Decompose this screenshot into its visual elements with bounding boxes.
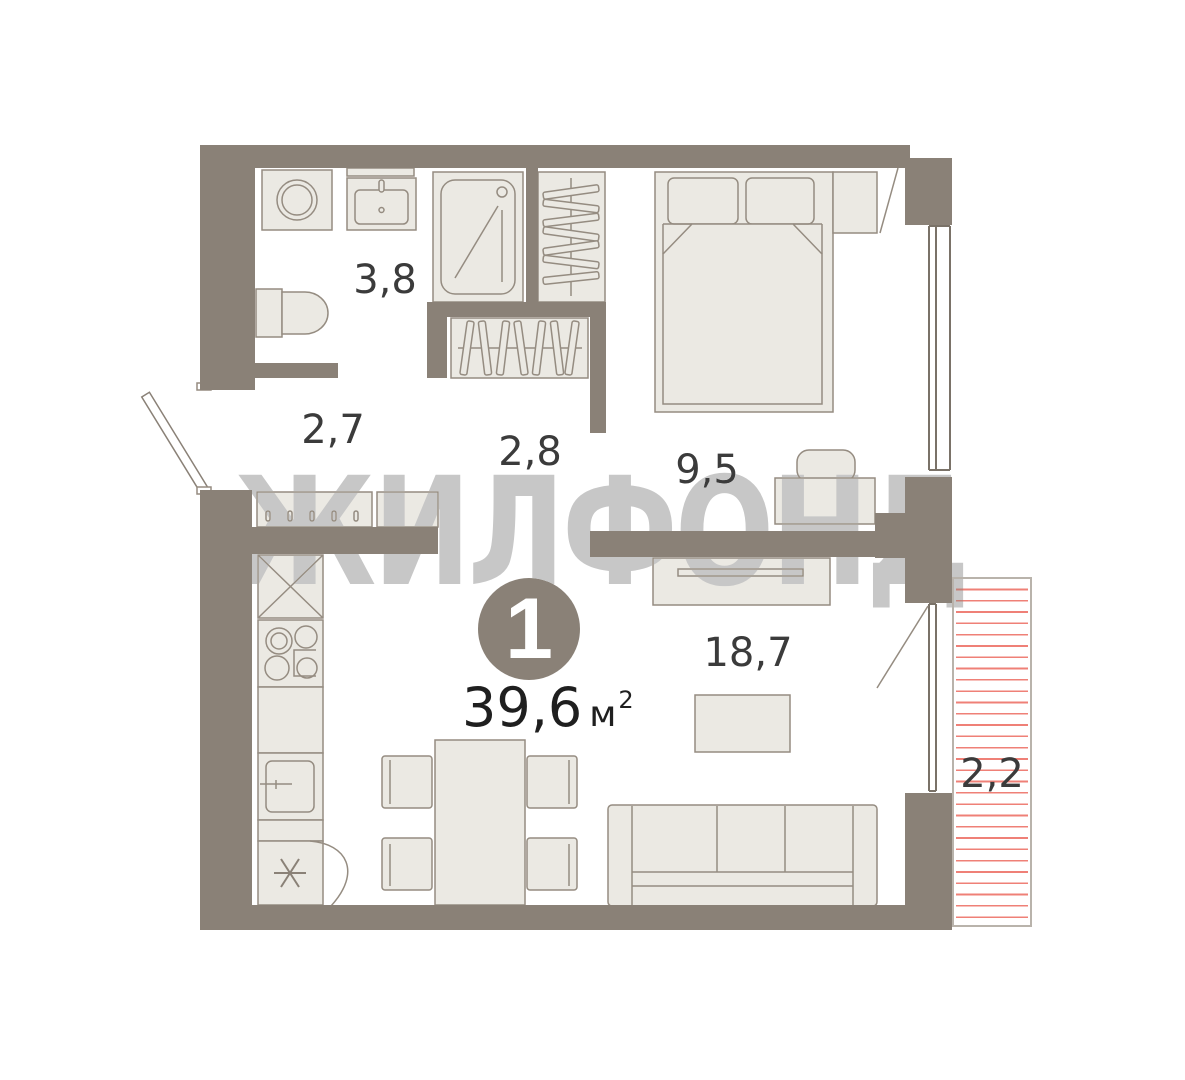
total-area: 39,6 м 2 [462, 676, 634, 739]
blanket-icon [663, 224, 822, 404]
balcony-door-icon [929, 604, 936, 791]
wall-under-shower [427, 302, 606, 317]
pillar-right-bottom [905, 793, 952, 930]
washing-machine-icon [262, 170, 332, 230]
stove-icon [258, 620, 323, 687]
kitchen-strip-icon [258, 820, 323, 841]
bedroom-window-icon [929, 226, 950, 470]
wardrobe-side-icon [538, 172, 605, 302]
floor-plan-canvas: 3,8 2,7 2,8 9,5 18,7 2,2 1 39,6 м 2 ЖИЛФ… [0, 0, 1185, 1080]
toilet-icon [256, 289, 328, 337]
bed-icon [655, 172, 833, 412]
watermark-text: ЖИЛФОНД [233, 446, 967, 620]
wall-bottom [200, 905, 907, 930]
shower-icon [433, 172, 523, 302]
wall-top [200, 145, 910, 168]
total-area-superscript: 2 [618, 686, 633, 714]
fridge-icon [258, 841, 348, 906]
room-area-living-kitchen: 18,7 [703, 630, 792, 676]
room-area-balcony: 2,2 [960, 751, 1024, 797]
wall-shower-wardrobe-divider [526, 168, 538, 302]
wall-wardrobe-left [427, 307, 447, 378]
wall-bathroom-south [255, 363, 338, 378]
window-swing-line [880, 168, 898, 233]
kitchen-counter-icon [258, 687, 323, 753]
wall-left-upper [200, 145, 255, 390]
wardrobe-front-icon [451, 318, 588, 378]
wall-corridor-vertical [590, 302, 606, 433]
pillar-top-right [905, 158, 952, 225]
entrance-door-icon [142, 383, 211, 494]
nightstand-icon [833, 172, 877, 233]
total-area-unit: м [589, 694, 616, 735]
coffee-table-icon [695, 695, 790, 752]
room-area-bathroom: 3,8 [353, 257, 417, 303]
bathroom-sink-icon [347, 168, 416, 230]
sofa-icon [608, 805, 877, 906]
dining-table-icon [435, 740, 525, 905]
kitchen-sink-icon [258, 753, 323, 820]
total-area-value: 39,6 [462, 676, 582, 739]
